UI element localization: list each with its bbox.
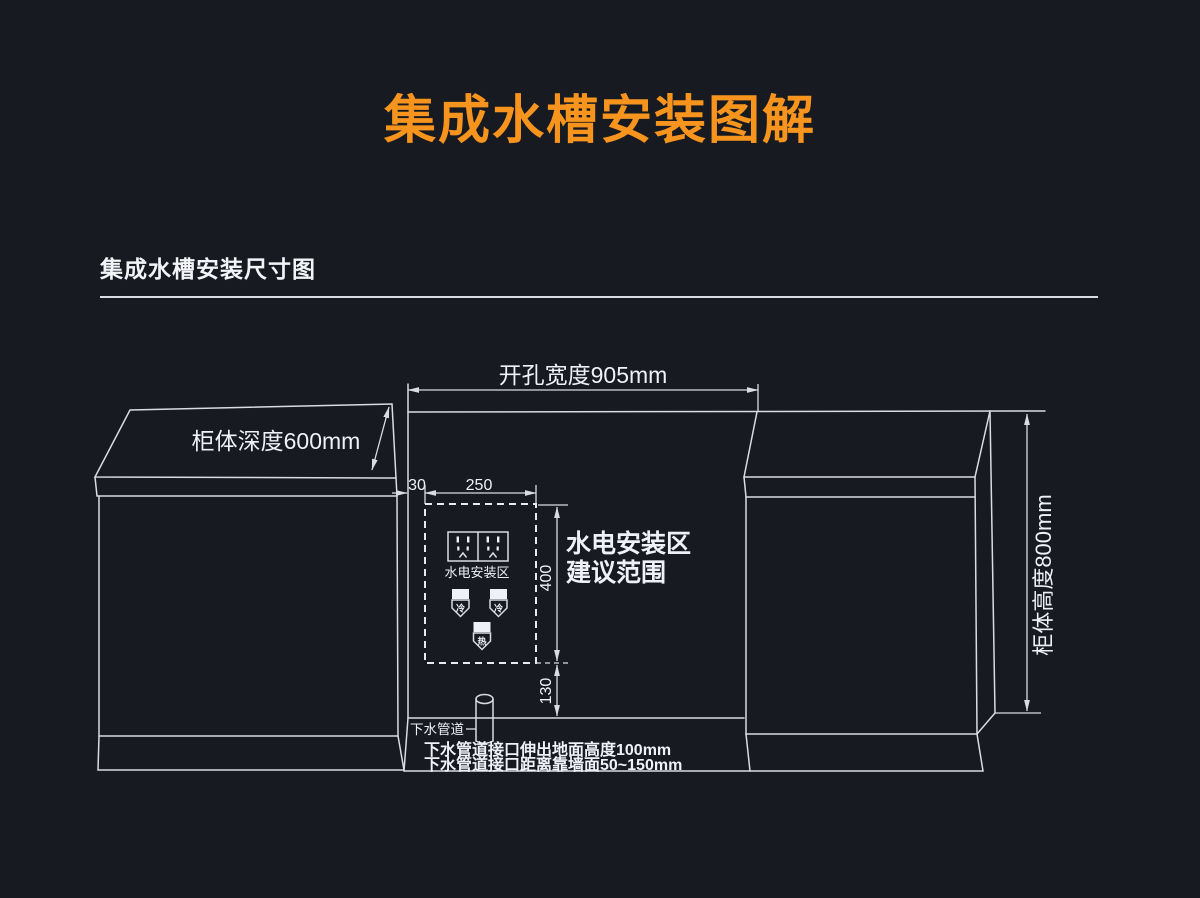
cold-valve-label: 冷	[456, 603, 465, 614]
floor-left-edge	[404, 718, 408, 771]
socket-pin	[497, 547, 499, 551]
socket-pin	[457, 537, 459, 543]
socket-pin	[457, 547, 459, 551]
drain-notes: 下水管道接口伸出地面高度100mm 下水管道接口距离靠墙面50~150mm	[424, 740, 682, 774]
drain-pipe-icon: 下水管道	[410, 695, 493, 744]
dim-400-label: 400	[538, 565, 555, 592]
cold-valve-label: 冷	[494, 603, 503, 614]
dim-zone-width-250: 250	[425, 477, 536, 504]
right-cabinet-plinth	[746, 734, 983, 771]
dim-cabinet-height-label: 柜体高度800mm	[1031, 494, 1056, 655]
zone-note-line1: 水电安装区	[566, 529, 691, 558]
dim-bottom-gap-130: 130	[536, 663, 569, 716]
hot-water-valve-icon: 热	[474, 622, 491, 650]
socket-pin	[487, 537, 489, 543]
pipe-top	[476, 695, 493, 704]
left-cabinet-front-face	[99, 496, 398, 736]
page: 集成水槽安装图解 集成水槽安装尺寸图	[0, 0, 1200, 898]
dim-line	[372, 407, 389, 470]
socket-pin	[490, 553, 496, 557]
socket-pin	[497, 537, 499, 543]
valve-cap	[452, 589, 469, 599]
dim-opening-width: 开孔宽度905mm	[408, 362, 758, 412]
installation-diagram: 开孔宽度905mm 柜体深度600mm 柜体高度800mm 30 250	[0, 0, 1200, 898]
hot-valve-label: 热	[477, 636, 486, 647]
outlet-zone-label: 水电安装区	[444, 565, 509, 580]
dim-30-label: 30	[408, 477, 426, 494]
dim-250-label: 250	[466, 477, 493, 494]
dim-130-label: 130	[538, 678, 555, 705]
socket-pin	[487, 547, 489, 551]
socket-pin	[467, 537, 469, 543]
socket-pin	[460, 553, 466, 557]
zone-note: 水电安装区 建议范围	[566, 529, 691, 587]
valve-cap	[490, 589, 507, 599]
right-cabinet	[744, 411, 995, 771]
socket-pin	[467, 547, 469, 551]
drain-pipe-label: 下水管道	[410, 722, 464, 737]
dim-cabinet-depth: 柜体深度600mm	[192, 407, 389, 470]
dim-cabinet-height: 柜体高度800mm	[995, 414, 1056, 713]
dim-zone-height-400: 400	[538, 505, 568, 661]
power-socket-icon	[448, 532, 508, 561]
cold-water-valve-icon: 冷	[452, 589, 469, 617]
install-zone: 水电安装区 冷 冷 热	[425, 504, 536, 663]
right-cabinet-front-face	[746, 477, 977, 734]
zone-note-line2: 建议范围	[566, 559, 666, 587]
left-cabinet	[95, 404, 404, 770]
valve-cap	[474, 622, 491, 632]
left-cabinet-counter-band	[95, 477, 397, 496]
right-cabinet-top	[744, 411, 990, 477]
dim-cabinet-depth-label: 柜体深度600mm	[192, 428, 361, 454]
drain-note-line2: 下水管道接口距离靠墙面50~150mm	[424, 755, 682, 774]
left-cabinet-plinth	[98, 736, 404, 770]
right-cabinet-counter-band	[744, 477, 975, 497]
wall-top-edge	[408, 411, 1045, 412]
dim-opening-width-label: 开孔宽度905mm	[499, 362, 668, 388]
cold-water-valve-icon: 冷	[490, 589, 507, 617]
